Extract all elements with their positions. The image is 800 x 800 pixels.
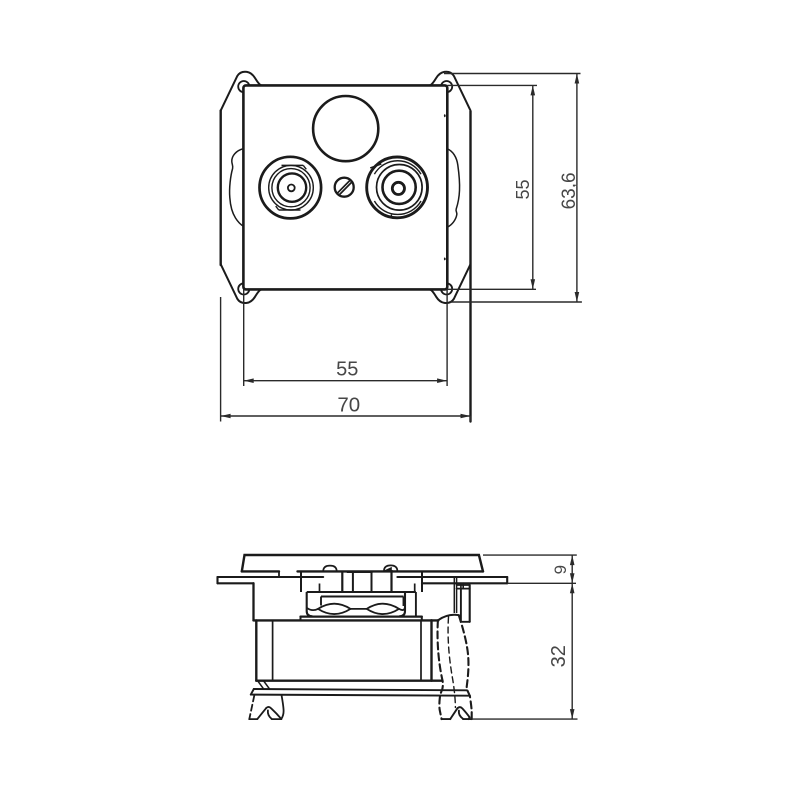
svg-text:70: 70 [337,394,360,417]
svg-text:32: 32 [548,645,570,667]
svg-text:55: 55 [336,359,358,381]
svg-text:63,6: 63,6 [559,172,580,209]
svg-text:55: 55 [513,179,533,199]
svg-text:9: 9 [551,565,570,574]
